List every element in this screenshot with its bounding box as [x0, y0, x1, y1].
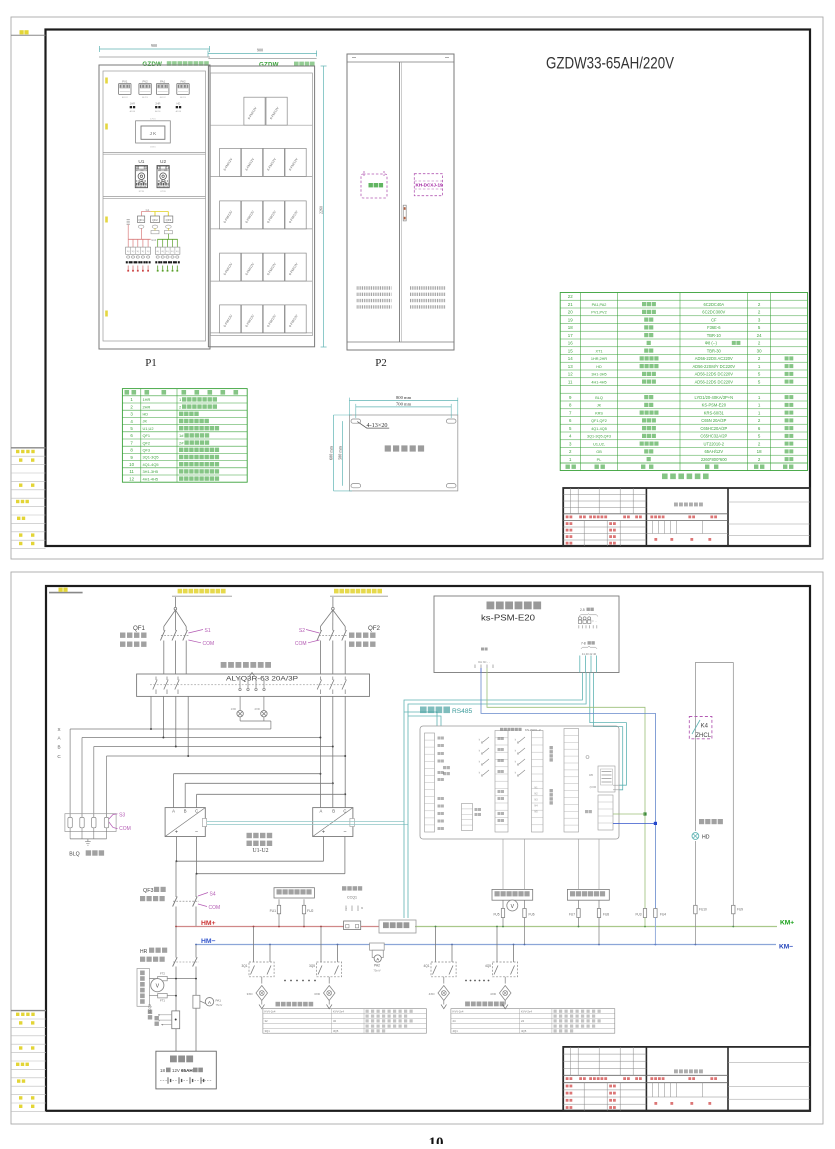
svg-text:Φ8 (--): Φ8 (--)	[705, 341, 718, 346]
svg-text:4Q: 4Q	[176, 251, 179, 253]
svg-text:S3: S3	[119, 813, 125, 819]
svg-text:65AH: 65AH	[181, 1068, 193, 1073]
svg-text:FU10: FU10	[699, 908, 707, 912]
svg-text:24: 24	[757, 333, 762, 338]
svg-text:P1: P1	[145, 357, 157, 369]
svg-text:F36E-6: F36E-6	[707, 325, 721, 330]
svg-text:6C2DC300V: 6C2DC300V	[702, 310, 725, 315]
svg-text:C65N 20A/3P: C65N 20A/3P	[701, 418, 726, 423]
svg-text:3Q: 3Q	[132, 251, 135, 253]
svg-text:P2: P2	[375, 357, 387, 369]
svg-text:X: X	[57, 727, 60, 732]
svg-text:COM: COM	[295, 641, 307, 647]
svg-text:PV1,PV2: PV1,PV2	[591, 311, 606, 315]
svg-text:-: -	[596, 619, 597, 623]
svg-text:FU5: FU5	[493, 913, 499, 917]
svg-text:3Q1-3Q5,QF3: 3Q1-3Q5,QF3	[587, 435, 611, 439]
svg-text:JK: JK	[597, 404, 602, 408]
svg-text:KM+: KM+	[780, 920, 794, 927]
svg-text:4H1-4H5: 4H1-4H5	[143, 476, 159, 481]
svg-text:24: 24	[453, 1019, 457, 1023]
svg-text:JK: JK	[143, 419, 148, 424]
svg-text:6L2-V: 6L2-V	[122, 97, 128, 99]
svg-text:FU4: FU4	[660, 913, 666, 917]
svg-text:S2: S2	[299, 628, 305, 634]
svg-text:UT22010-2: UT22010-2	[704, 441, 725, 446]
svg-text:700 mm: 700 mm	[396, 402, 412, 407]
svg-text:CCQ1: CCQ1	[347, 895, 357, 899]
svg-text:500 mm: 500 mm	[337, 445, 342, 460]
svg-text:14: 14	[568, 356, 573, 361]
svg-text:BLQ: BLQ	[69, 852, 79, 858]
svg-text:HD: HD	[596, 365, 602, 369]
svg-text:4H1-4H5: 4H1-4H5	[591, 380, 606, 384]
svg-text:FU7: FU7	[569, 913, 575, 917]
svg-text:AD56: AD56	[130, 110, 136, 113]
svg-text:QF1: QF1	[138, 218, 144, 222]
svg-text:1HR: 1HR	[143, 397, 151, 402]
svg-text:HR: HR	[140, 949, 148, 955]
svg-text:AD56: AD56	[176, 110, 182, 113]
svg-text:RS485: RS485	[452, 708, 472, 715]
svg-text:175.5: 175.5	[150, 119, 156, 121]
svg-text:HD: HD	[143, 412, 149, 417]
svg-text:KRS-60/31: KRS-60/31	[704, 410, 725, 415]
svg-text:3XD: 3XD	[314, 992, 321, 996]
svg-text:4Q5: 4Q5	[485, 964, 491, 968]
svg-text:ZHCL: ZHCL	[695, 733, 711, 739]
svg-text:6C2DC40A: 6C2DC40A	[703, 302, 724, 307]
svg-text:G10: G10	[151, 238, 156, 242]
svg-text:900: 900	[151, 43, 157, 48]
svg-text:QF3: QF3	[143, 888, 153, 894]
svg-text:3Q: 3Q	[136, 251, 139, 253]
svg-text:KM−: KM−	[779, 944, 793, 951]
svg-text:18: 18	[160, 1068, 165, 1073]
svg-text:18: 18	[568, 325, 573, 330]
svg-text:800 mm: 800 mm	[396, 395, 412, 400]
svg-text:FU1: FU1	[270, 909, 277, 913]
svg-text:7-8: 7-8	[581, 642, 586, 646]
svg-text:2HR: 2HR	[155, 102, 160, 106]
svg-text:3Q: 3Q	[142, 251, 145, 253]
svg-text:AD56-22DS DC220V: AD56-22DS DC220V	[695, 372, 734, 377]
svg-text:AD56-22DS AC220V: AD56-22DS AC220V	[695, 356, 733, 361]
svg-text:4XD: 4XD	[429, 992, 436, 996]
svg-text:18: 18	[757, 449, 762, 454]
svg-text:21: 21	[568, 302, 573, 307]
svg-text:1HR,2HR: 1HR,2HR	[591, 357, 608, 361]
svg-text:QF2: QF2	[143, 440, 151, 445]
svg-text:183.5: 183.5	[150, 147, 156, 149]
svg-text:AD56: AD56	[155, 110, 161, 113]
svg-text:M: M	[158, 1013, 160, 1017]
svg-text:PA2: PA2	[180, 79, 186, 83]
svg-text:COM: COM	[203, 641, 215, 647]
svg-text:C: C	[343, 809, 346, 814]
svg-text:4XD: 4XD	[490, 992, 497, 996]
svg-text:COM: COM	[119, 826, 131, 832]
svg-text:13: 13	[568, 364, 573, 369]
svg-text:3Q1: 3Q1	[241, 964, 247, 968]
svg-text:A: A	[320, 809, 323, 814]
svg-text:GZDW33-65AH/220V: GZDW33-65AH/220V	[546, 55, 674, 73]
svg-text:4Q1-4Q5: 4Q1-4Q5	[143, 462, 159, 467]
svg-text:KVV-2x4: KVV-2x4	[521, 1009, 532, 1013]
svg-text:24: 24	[521, 1019, 525, 1023]
svg-text:12: 12	[568, 372, 573, 377]
svg-text:75mV: 75mV	[373, 969, 380, 973]
svg-text:PA2: PA2	[374, 963, 380, 967]
svg-text:PL: PL	[597, 458, 602, 462]
svg-text:QF1,QF2: QF1,QF2	[591, 419, 607, 423]
svg-text:QF3: QF3	[143, 448, 151, 453]
svg-text:FU8: FU8	[603, 913, 609, 917]
svg-text:11: 11	[129, 469, 134, 474]
svg-text:PA1: PA1	[216, 999, 222, 1003]
svg-text:41 40 42 40: 41 40 42 40	[582, 652, 597, 656]
svg-text:2260: 2260	[318, 206, 323, 214]
svg-text:B: B	[332, 809, 335, 814]
svg-text:600 mm: 600 mm	[328, 445, 333, 460]
svg-text:AD56-22DS DC220V: AD56-22DS DC220V	[695, 379, 734, 384]
svg-text:32: 32	[333, 1019, 337, 1023]
svg-text:17: 17	[568, 333, 573, 338]
svg-text:U2: U2	[160, 159, 166, 165]
svg-text:12: 12	[129, 476, 134, 481]
svg-text:U1,U2,: U1,U2,	[593, 442, 605, 446]
svg-text:−: −	[343, 830, 346, 836]
svg-text:KS-ZHCL-2: KS-ZHCL-2	[525, 728, 541, 732]
svg-text:3Q1-3Q5: 3Q1-3Q5	[143, 455, 159, 460]
svg-text:3Q: 3Q	[127, 251, 130, 253]
svg-text:FT1: FT1	[160, 999, 165, 1003]
svg-text:4Q: 4Q	[166, 251, 169, 253]
svg-text:2XD: 2XD	[254, 707, 259, 711]
svg-text:KVV-2x4: KVV-2x4	[453, 1009, 464, 1013]
svg-text:QF2: QF2	[368, 625, 381, 632]
svg-text:AD56-22SM/Y DC220V: AD56-22SM/Y DC220V	[692, 364, 735, 369]
svg-text:3Q5: 3Q5	[309, 964, 315, 968]
svg-text:4Q: 4Q	[171, 251, 174, 253]
svg-text:QF1: QF1	[133, 625, 146, 632]
svg-text:2#: 2#	[179, 440, 184, 445]
svg-text:2260*800*600: 2260*800*600	[701, 457, 728, 462]
svg-text:KH-DCXJ-19: KH-DCXJ-19	[416, 183, 444, 188]
svg-text:KT20: KT20	[160, 191, 166, 193]
svg-text:4Q: 4Q	[161, 251, 164, 253]
svg-text:15: 15	[568, 348, 573, 353]
svg-text:TBR-30: TBR-30	[707, 348, 722, 353]
svg-text:11: 11	[568, 379, 573, 384]
svg-text:A: A	[376, 957, 379, 962]
svg-text:M: M	[361, 906, 363, 910]
svg-text:KRS: KRS	[595, 411, 603, 415]
svg-text:3Q: 3Q	[147, 251, 150, 253]
svg-text:QF1: QF1	[143, 433, 151, 438]
svg-text:K4: K4	[701, 724, 709, 730]
svg-text:PV2: PV2	[142, 79, 148, 83]
svg-text:U1: U1	[138, 159, 144, 165]
svg-text:ks-PSM-E20: ks-PSM-E20	[481, 613, 535, 623]
svg-text:+: +	[322, 830, 325, 836]
svg-text:A: A	[208, 1000, 211, 1005]
svg-text:S1: S1	[205, 628, 211, 634]
svg-text:+: +	[175, 830, 178, 836]
svg-text:U1,U2: U1,U2	[143, 426, 154, 431]
svg-text:3H1-3H5: 3H1-3H5	[143, 469, 159, 474]
svg-text:(COM: (COM	[590, 786, 596, 789]
svg-text:S4: S4	[210, 891, 216, 897]
svg-text:QF3: QF3	[166, 218, 172, 222]
svg-text:FU3: FU3	[635, 913, 641, 917]
svg-text:4Q1: 4Q1	[453, 1029, 459, 1033]
svg-text:C65HC20A/2P: C65HC20A/2P	[700, 426, 727, 431]
svg-text:LYD1/20-40KA/3P+N: LYD1/20-40KA/3P+N	[695, 395, 734, 400]
svg-text:3H1-3H5: 3H1-3H5	[591, 373, 606, 377]
svg-text:J K: J K	[150, 131, 158, 136]
svg-text:485: 485	[589, 774, 594, 777]
svg-text:2HR: 2HR	[143, 404, 151, 409]
svg-text:10: 10	[429, 1135, 444, 1144]
svg-text:1#: 1#	[179, 433, 184, 438]
svg-text:2-5: 2-5	[580, 608, 585, 612]
svg-text:6L2-V: 6L2-V	[142, 97, 148, 99]
svg-text:TBR-10: TBR-10	[707, 333, 722, 338]
svg-text:KS-PSM-E20: KS-PSM-E20	[702, 403, 727, 408]
svg-text:CF: CF	[711, 317, 717, 322]
svg-text:1HR: 1HR	[130, 102, 135, 106]
svg-text:C: C	[195, 809, 198, 814]
svg-text:V: V	[156, 984, 160, 990]
svg-text:FU2: FU2	[307, 909, 314, 913]
svg-text:75mV: 75mV	[216, 1003, 223, 1007]
svg-text:PV1: PV1	[122, 79, 128, 83]
svg-text:65AH/12V: 65AH/12V	[704, 449, 723, 454]
svg-text:FU6: FU6	[529, 913, 535, 917]
svg-text:HD: HD	[702, 835, 710, 841]
svg-text:22: 22	[568, 294, 573, 299]
svg-text:BLQ: BLQ	[595, 396, 603, 400]
svg-text:GZDW: GZDW	[259, 62, 279, 69]
svg-text:KT20: KT20	[139, 191, 145, 193]
svg-text:4Q: 4Q	[156, 251, 159, 253]
svg-text:4Q1-4Q5: 4Q1-4Q5	[591, 427, 607, 431]
svg-text:6L2-V: 6L2-V	[180, 97, 186, 99]
svg-text:ALYQ3R-63 20A/3P: ALYQ3R-63 20A/3P	[226, 676, 299, 683]
svg-text:HD: HD	[177, 102, 181, 106]
svg-text:1XD: 1XD	[231, 707, 236, 711]
svg-text:FU9: FU9	[737, 908, 743, 912]
svg-text:A: A	[172, 809, 175, 814]
svg-text:B: B	[184, 809, 187, 814]
svg-text:QF2: QF2	[152, 218, 158, 222]
svg-text:4-13×20: 4-13×20	[367, 422, 388, 429]
svg-text:FT2: FT2	[160, 972, 165, 976]
svg-text:−: −	[195, 830, 198, 836]
svg-text:30: 30	[757, 348, 762, 353]
svg-text:3XD: 3XD	[247, 992, 254, 996]
svg-text:KVV-2x4: KVV-2x4	[333, 1009, 344, 1013]
svg-text:12V: 12V	[172, 1068, 180, 1073]
svg-text:PA1: PA1	[160, 79, 166, 83]
svg-text:U1-U2: U1-U2	[252, 848, 268, 854]
svg-text:=: =	[592, 619, 594, 623]
svg-text:10: 10	[129, 462, 134, 467]
svg-text:20: 20	[568, 310, 573, 315]
svg-text:CCQ2: CCQ2	[148, 1004, 152, 1013]
svg-text:XT1: XT1	[596, 349, 603, 353]
svg-text:4Q1: 4Q1	[423, 964, 429, 968]
svg-text:COM: COM	[209, 905, 221, 911]
svg-text:19: 19	[568, 317, 573, 322]
svg-text:C65HC32A/2P: C65HC32A/2P	[700, 434, 727, 439]
svg-text:4Q5: 4Q5	[521, 1029, 527, 1033]
svg-text:DH NC - -: DH NC - -	[478, 660, 490, 664]
svg-text:PA1,PA2: PA1,PA2	[592, 303, 607, 307]
svg-text:GB: GB	[596, 450, 602, 454]
svg-text:3Q5: 3Q5	[333, 1029, 339, 1033]
svg-text:6L2-V: 6L2-V	[160, 97, 166, 99]
svg-text:3Q1: 3Q1	[265, 1029, 271, 1033]
svg-text:32: 32	[265, 1019, 269, 1023]
svg-text:KVV-2x4: KVV-2x4	[265, 1009, 276, 1013]
svg-text:900: 900	[257, 48, 263, 53]
svg-text:B: B	[57, 745, 60, 750]
svg-text:16: 16	[568, 341, 573, 346]
